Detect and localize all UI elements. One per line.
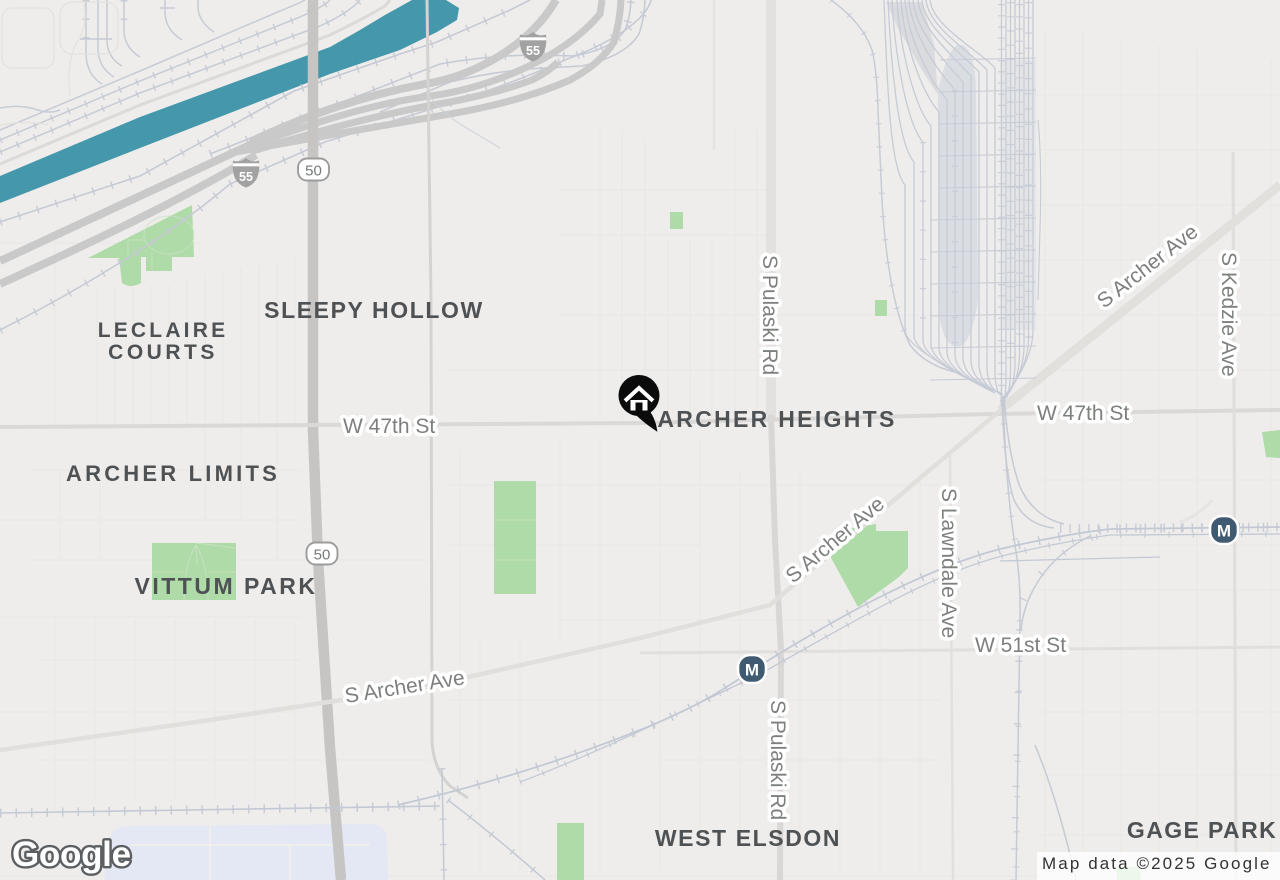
svg-text:WEST ELSDON: WEST ELSDON (655, 825, 841, 851)
svg-text:50: 50 (314, 546, 331, 563)
svg-text:LECLAIRE: LECLAIRE (98, 319, 229, 342)
svg-text:VITTUM PARK: VITTUM PARK (135, 573, 318, 599)
svg-text:W 47th St: W 47th St (1037, 402, 1129, 425)
svg-text:M: M (1217, 522, 1231, 541)
svg-text:Google: Google (12, 835, 131, 874)
svg-text:W 47th St: W 47th St (343, 415, 435, 438)
svg-text:S Kedzie Ave: S Kedzie Ave (1217, 252, 1240, 377)
svg-text:S Pulaski Rd: S Pulaski Rd (758, 255, 781, 375)
svg-text:COURTS: COURTS (108, 341, 218, 364)
svg-text:ARCHER LIMITS: ARCHER LIMITS (66, 461, 280, 486)
svg-text:W 51st St: W 51st St (975, 634, 1066, 657)
svg-text:ARCHER HEIGHTS: ARCHER HEIGHTS (657, 406, 896, 432)
svg-text:Map data ©2025 Google: Map data ©2025 Google (1042, 854, 1272, 873)
svg-text:GAGE PARK: GAGE PARK (1127, 817, 1277, 843)
svg-text:SLEEPY HOLLOW: SLEEPY HOLLOW (264, 297, 484, 323)
svg-text:50: 50 (305, 162, 322, 179)
svg-text:S Pulaski Rd: S Pulaski Rd (766, 700, 789, 820)
svg-text:M: M (745, 661, 759, 680)
svg-text:S Lawndale Ave: S Lawndale Ave (937, 488, 960, 638)
